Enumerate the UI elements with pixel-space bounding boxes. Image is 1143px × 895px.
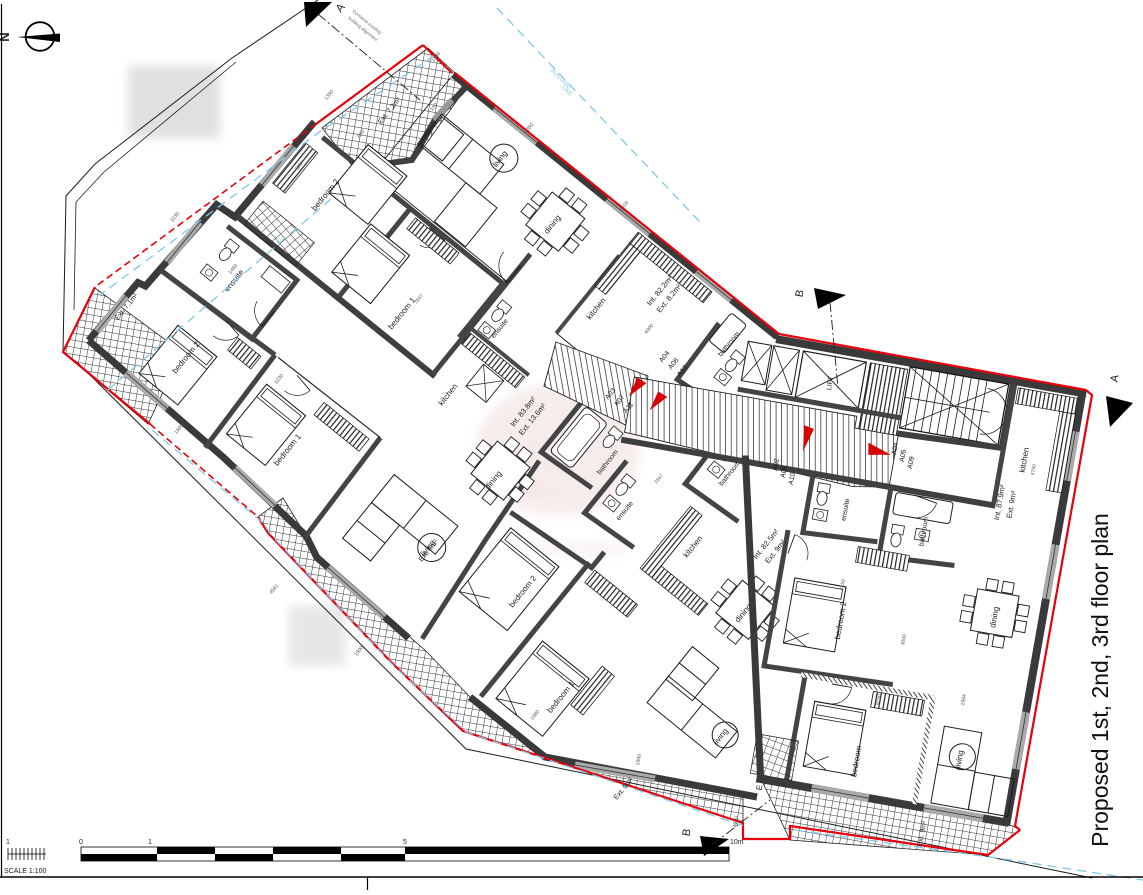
svg-text:0: 0 xyxy=(79,839,83,846)
svg-text:1: 1 xyxy=(148,839,152,846)
svg-text:1: 1 xyxy=(6,839,10,846)
svg-text:10m: 10m xyxy=(730,839,744,846)
svg-text:5: 5 xyxy=(403,839,407,846)
svg-text:Proposed 1st, 2nd, 3rd floor p: Proposed 1st, 2nd, 3rd floor plan xyxy=(1087,513,1113,847)
svg-text:SCALE 1:100: SCALE 1:100 xyxy=(4,868,47,875)
